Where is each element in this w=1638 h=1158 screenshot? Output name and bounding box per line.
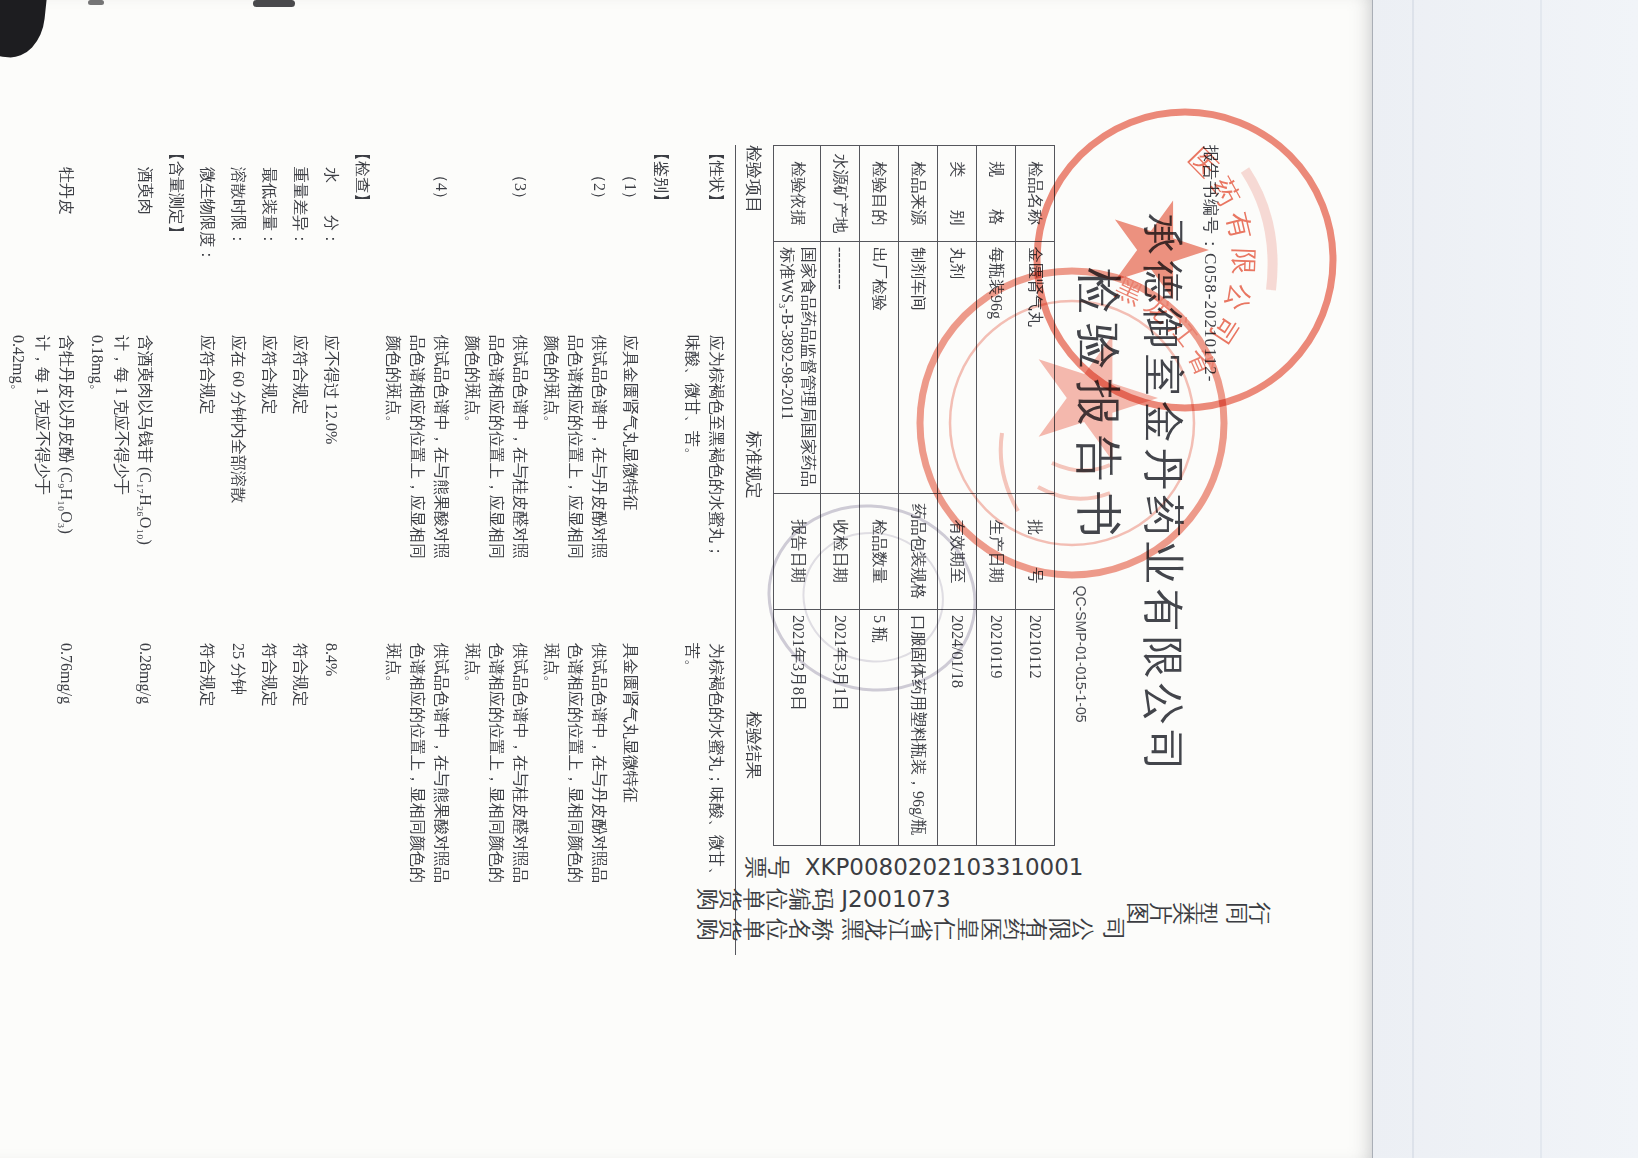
- column-header-item: 检验项目: [742, 145, 765, 335]
- result-text: 25 分钟: [226, 643, 250, 893]
- info-label: 检品来源: [899, 146, 938, 242]
- spec-text: 应符合规定: [257, 335, 281, 563]
- spec-text: 供试品色谱中，在与丹皮酚对照品色谱相应的位置上，应显相同颜色的斑点。: [539, 335, 611, 563]
- item-label: 【性状】: [680, 145, 728, 335]
- info-value: --------: [821, 242, 860, 494]
- info-value: 20210112: [1016, 610, 1055, 846]
- info-value: 出厂检验: [860, 242, 899, 494]
- ticket-number-value: XKP0080202103310001: [805, 854, 1084, 880]
- table-row: 水源矿产地 -------- 收检日期 2021年3月1日: [821, 146, 860, 846]
- spec-text: [649, 335, 673, 563]
- table-row: （1）应具金匮肾气丸显微特征具金匮肾气丸显微特征: [618, 145, 642, 975]
- table-row: 【检查】: [350, 145, 374, 975]
- result-text: [350, 643, 374, 893]
- info-value: 国家食品药品监督管理局国家药品标准WS₃-B-3892-98-2011: [774, 242, 821, 494]
- table-row: 溶散时限：应在 60 分钟内全部溶散25 分钟: [226, 145, 250, 975]
- info-label: 检验目的: [860, 146, 899, 242]
- result-text: 符合规定: [257, 643, 281, 893]
- ticket-number-line: 票号 XKP0080202103310001: [744, 852, 1083, 883]
- red-quality-stamp: 黑龙江省: [907, 258, 1237, 588]
- item-label: 最低装量：: [257, 145, 281, 335]
- item-label: 重量差异：: [288, 145, 312, 335]
- spec-text: [164, 335, 188, 563]
- scanned-report-screenshot: { "doc": { "report_no_label": "报告书编号：", …: [0, 0, 1638, 1158]
- item-label: 酒萸肉: [85, 145, 157, 335]
- result-text: 符合规定: [288, 643, 312, 893]
- spec-text: 应在 60 分钟内全部溶散: [226, 335, 250, 563]
- info-value: 20210119: [977, 610, 1016, 846]
- buyer-name-line: 购货单位名称 黑龙江省仁皇医药有限公 司: [696, 914, 1125, 945]
- table-row: 【含量测定】: [164, 145, 188, 975]
- spec-text: 含牡丹皮以丹皮酚 (C₉H₁₀O₃) 计，每 1 克应不得少于 0.42mg。: [6, 335, 78, 563]
- result-text: [649, 643, 673, 893]
- item-label: 牡丹皮: [6, 145, 78, 335]
- info-label: 规 格: [977, 146, 1016, 242]
- item-label: 微生物限度：: [195, 145, 219, 335]
- spec-text: 供试品色谱中，在与熊果酸对照品色谱相应的位置上，应显相同颜色的斑点。: [381, 335, 453, 563]
- result-text: 供试品色谱中，在与熊果酸对照品色谱相应的位置上，显相同颜色的斑点。: [381, 643, 453, 893]
- buyer-name-label: 购货单位名称: [696, 916, 834, 942]
- result-text: 符合规定: [195, 643, 219, 893]
- item-label: 溶散时限：: [226, 145, 250, 335]
- rotated-document: 报告书编号：C058-20210112- 承德御室金丹药业有限公司 检验报告书 …: [0, 0, 1372, 1158]
- spec-text: 应不得过 12.0%: [319, 335, 343, 563]
- qc-document-code: QC-SMP-01-015-1-05: [1073, 586, 1089, 723]
- scan-streak: [1540, 0, 1542, 1158]
- item-label: 【鉴别】: [649, 145, 673, 335]
- scan-edge-mark: [88, 0, 104, 5]
- spec-text: 应为棕褐色至黑褐色的水蜜丸；味酸、微甘、苦。: [680, 335, 728, 563]
- item-label: （2）: [539, 145, 611, 335]
- scanned-page: 报告书编号：C058-20210112- 承德御室金丹药业有限公司 检验报告书 …: [0, 0, 1372, 1158]
- result-text: 具金匮肾气丸显微特征: [618, 643, 642, 893]
- table-row: （3）供试品色谱中，在与桂皮醛对照品色谱相应的位置上，应显相同颜色的斑点。供试品…: [460, 145, 532, 975]
- table-row: 微生物限度：应符合规定符合规定: [195, 145, 219, 975]
- column-header-result: 检验结果: [742, 595, 765, 895]
- table-row: 酒萸肉含酒萸肉以马钱苷 (C₁₇H₂₆O₁₀) 计，每 1 克应不得少于 0.1…: [85, 145, 157, 975]
- spec-text: 含酒萸肉以马钱苷 (C₁₇H₂₆O₁₀) 计，每 1 克应不得少于 0.18mg…: [85, 335, 157, 563]
- item-label: 【检查】: [350, 145, 374, 335]
- buyer-code-line: 购货单位编码 J2001073: [696, 884, 951, 915]
- table-row: 检验依据 国家食品药品监督管理局国家药品标准WS₃-B-3892-98-2011…: [774, 146, 821, 846]
- info-label: 类 别: [938, 146, 977, 242]
- result-text: 8.4%: [319, 643, 343, 893]
- result-text: 0.76mg/g: [6, 643, 78, 893]
- table-row: 【鉴别】: [649, 145, 673, 975]
- result-text: [164, 643, 188, 893]
- scan-streak: [1412, 0, 1414, 1158]
- buyer-name-value: 黑龙江省仁皇医药有限公 司: [841, 916, 1124, 942]
- spec-text: 应符合规定: [288, 335, 312, 563]
- results-table-header: 检验项目 标准规定 检验结果: [735, 145, 773, 955]
- item-label: （3）: [460, 145, 532, 335]
- spec-text: 应符合规定: [195, 335, 219, 563]
- image-type-value: 同行: [1225, 900, 1271, 926]
- image-type-line: 图片类型 同行: [1126, 898, 1271, 929]
- table-row: 重量差异：应符合规定符合规定: [288, 145, 312, 975]
- table-row: 【性状】应为棕褐色至黑褐色的水蜜丸；味酸、微甘、苦。为棕褐色的水蜜丸；味酸、微甘…: [680, 145, 728, 975]
- table-row: 牡丹皮含牡丹皮以丹皮酚 (C₉H₁₀O₃) 计，每 1 克应不得少于 0.42m…: [6, 145, 78, 975]
- result-text: 为棕褐色的水蜜丸；味酸、微甘、苦。: [680, 643, 728, 893]
- image-type-label: 图片类型: [1126, 900, 1218, 926]
- item-label: （4）: [381, 145, 453, 335]
- spec-text: 应具金匮肾气丸显微特征: [618, 335, 642, 563]
- table-row: （2）供试品色谱中，在与丹皮酚对照品色谱相应的位置上，应显相同颜色的斑点。供试品…: [539, 145, 611, 975]
- svg-text:黑龙江省: 黑龙江省: [1111, 272, 1223, 384]
- spec-text: 供试品色谱中，在与桂皮醛对照品色谱相应的位置上，应显相同颜色的斑点。: [460, 335, 532, 563]
- item-label: （1）: [618, 145, 642, 335]
- spec-text: [350, 335, 374, 563]
- table-row: 检验目的 出厂检验 检品数量 5 瓶: [860, 146, 899, 846]
- buyer-code-label: 购货单位编码: [696, 886, 834, 912]
- info-label: 检验依据: [774, 146, 821, 242]
- info-label: 水源矿产地: [821, 146, 860, 242]
- result-text: 供试品色谱中，在与桂皮醛对照品色谱相应的位置上，显相同颜色的斑点。: [460, 643, 532, 893]
- scan-edge-mark: [253, 0, 295, 7]
- buyer-code-value: J2001073: [841, 886, 950, 912]
- ticket-number-label: 票号: [744, 854, 790, 880]
- item-label: 水 分：: [319, 145, 343, 335]
- item-label: 【含量测定】: [164, 145, 188, 335]
- column-header-spec: 标准规定: [742, 335, 765, 595]
- table-row: 最低装量：应符合规定符合规定: [257, 145, 281, 975]
- star-icon: [1039, 335, 1158, 461]
- result-text: 0.28mg/g: [85, 643, 157, 893]
- table-row: 水 分：应不得过 12.0%8.4%: [319, 145, 343, 975]
- table-row: （4）供试品色谱中，在与熊果酸对照品色谱相应的位置上，应显相同颜色的斑点。供试品…: [381, 145, 453, 975]
- result-text: 供试品色谱中，在与丹皮酚对照品色谱相应的位置上，显相同颜色的斑点。: [539, 643, 611, 893]
